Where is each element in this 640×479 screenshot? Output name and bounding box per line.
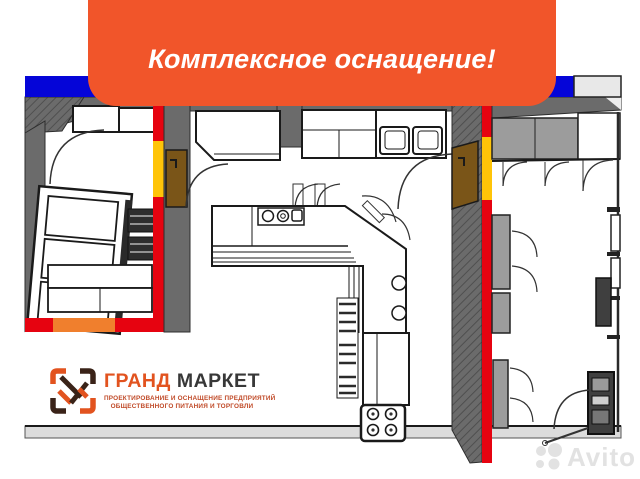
ad-image: Комплексное оснащение! ГРАНД МАРКЕТ ПРОЕ…	[0, 0, 640, 479]
logo-tagline-line2: ОБЩЕСТВЕННОГО ПИТАНИЯ И ТОРГОВЛИ	[104, 403, 260, 411]
left-room	[25, 97, 180, 334]
gray-bar-segment	[574, 76, 621, 97]
brand-name-primary: ГРАНД	[104, 370, 171, 392]
logo-tagline-line1: ПРОЕКТИРОВАНИЕ И ОСНАЩЕНИЕ ПРЕДПРИЯТИЙ	[104, 395, 260, 403]
brand-name-secondary: МАРКЕТ	[177, 370, 260, 392]
logo-text-block: ГРАНД МАРКЕТ ПРОЕКТИРОВАНИЕ И ОСНАЩЕНИЕ …	[104, 370, 260, 410]
grand-market-logo-icon	[50, 368, 96, 414]
avito-watermark: Avito	[530, 443, 636, 473]
brand-name: ГРАНД МАРКЕТ	[104, 370, 260, 393]
right-room	[492, 97, 621, 446]
promo-banner-text: Комплексное оснащение!	[88, 44, 556, 75]
avito-watermark-text: Avito	[567, 442, 636, 473]
floor-line	[25, 426, 621, 438]
divider-wall	[452, 97, 492, 463]
avito-logo-icon	[530, 443, 564, 473]
promo-banner: Комплексное оснащение!	[88, 0, 556, 106]
company-logo: ГРАНД МАРКЕТ ПРОЕКТИРОВАНИЕ И ОСНАЩЕНИЕ …	[50, 364, 260, 422]
